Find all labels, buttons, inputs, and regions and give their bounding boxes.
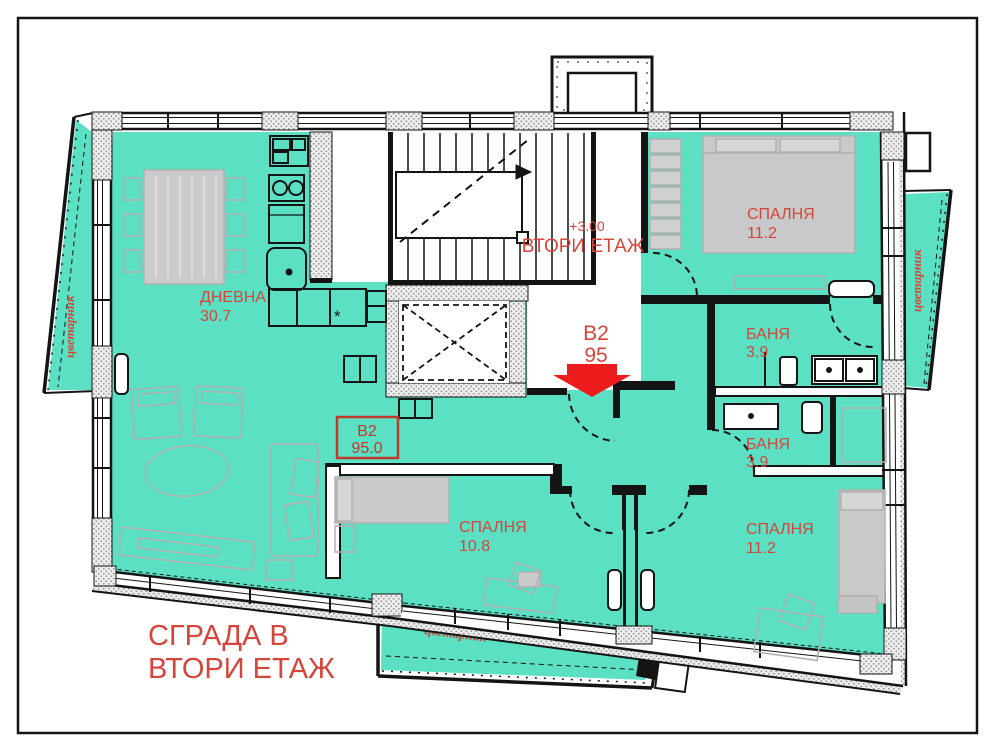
floor-plan: цветарник цветарник цветарник xyxy=(0,0,995,755)
room-label-bath-top: БАНЯ xyxy=(746,326,790,343)
toilet xyxy=(780,357,797,385)
room-area-bath-bottom: 3.9 xyxy=(746,454,768,471)
stair-landing xyxy=(396,172,522,238)
floor-plan-page: цветарник цветарник цветарник xyxy=(0,0,995,755)
room-area-bedroom-mid: 10.8 xyxy=(459,538,490,555)
toilet xyxy=(802,402,822,433)
door-leaf xyxy=(829,281,874,297)
room-area-bath-top: 3.9 xyxy=(746,344,768,361)
room-label-bath-bottom: БАНЯ xyxy=(746,436,790,453)
floor-name: ВТОРИ ЕТАЖ xyxy=(522,236,645,257)
room-label-bedroom-mid: СПАЛНЯ xyxy=(459,519,527,536)
room-label-bedroom-top: СПАЛНЯ xyxy=(747,206,815,223)
unit-area: 95 xyxy=(584,344,607,367)
room-area-bedroom-top: 11.2 xyxy=(747,225,777,242)
title-line2: ВТОРИ ЕТАЖ xyxy=(148,653,335,685)
wall-top xyxy=(92,112,893,130)
wardrobe xyxy=(650,139,681,249)
floor-elevation: +3.00 xyxy=(569,218,605,234)
room-label-bedroom-right: СПАЛНЯ xyxy=(746,521,814,538)
room-label-living: ДНЕВНА xyxy=(200,289,266,306)
shaft-top xyxy=(552,57,652,115)
planter-right-label: цветарник xyxy=(909,249,924,312)
unit-box-area: 95.0 xyxy=(351,440,382,457)
kitchen-asterisk: * xyxy=(334,307,341,326)
unit-box-id: B2 xyxy=(357,423,377,440)
room-area-living: 30.7 xyxy=(200,308,231,325)
exterior-unit-box xyxy=(906,133,930,171)
planter-left-label: цветарник xyxy=(62,295,77,358)
wall-left xyxy=(92,130,112,572)
room-area-bedroom-right: 11.2 xyxy=(746,540,776,557)
title-line1: СГРАДА В xyxy=(148,620,289,652)
elevator xyxy=(386,285,528,397)
unit-id: B2 xyxy=(583,322,609,345)
